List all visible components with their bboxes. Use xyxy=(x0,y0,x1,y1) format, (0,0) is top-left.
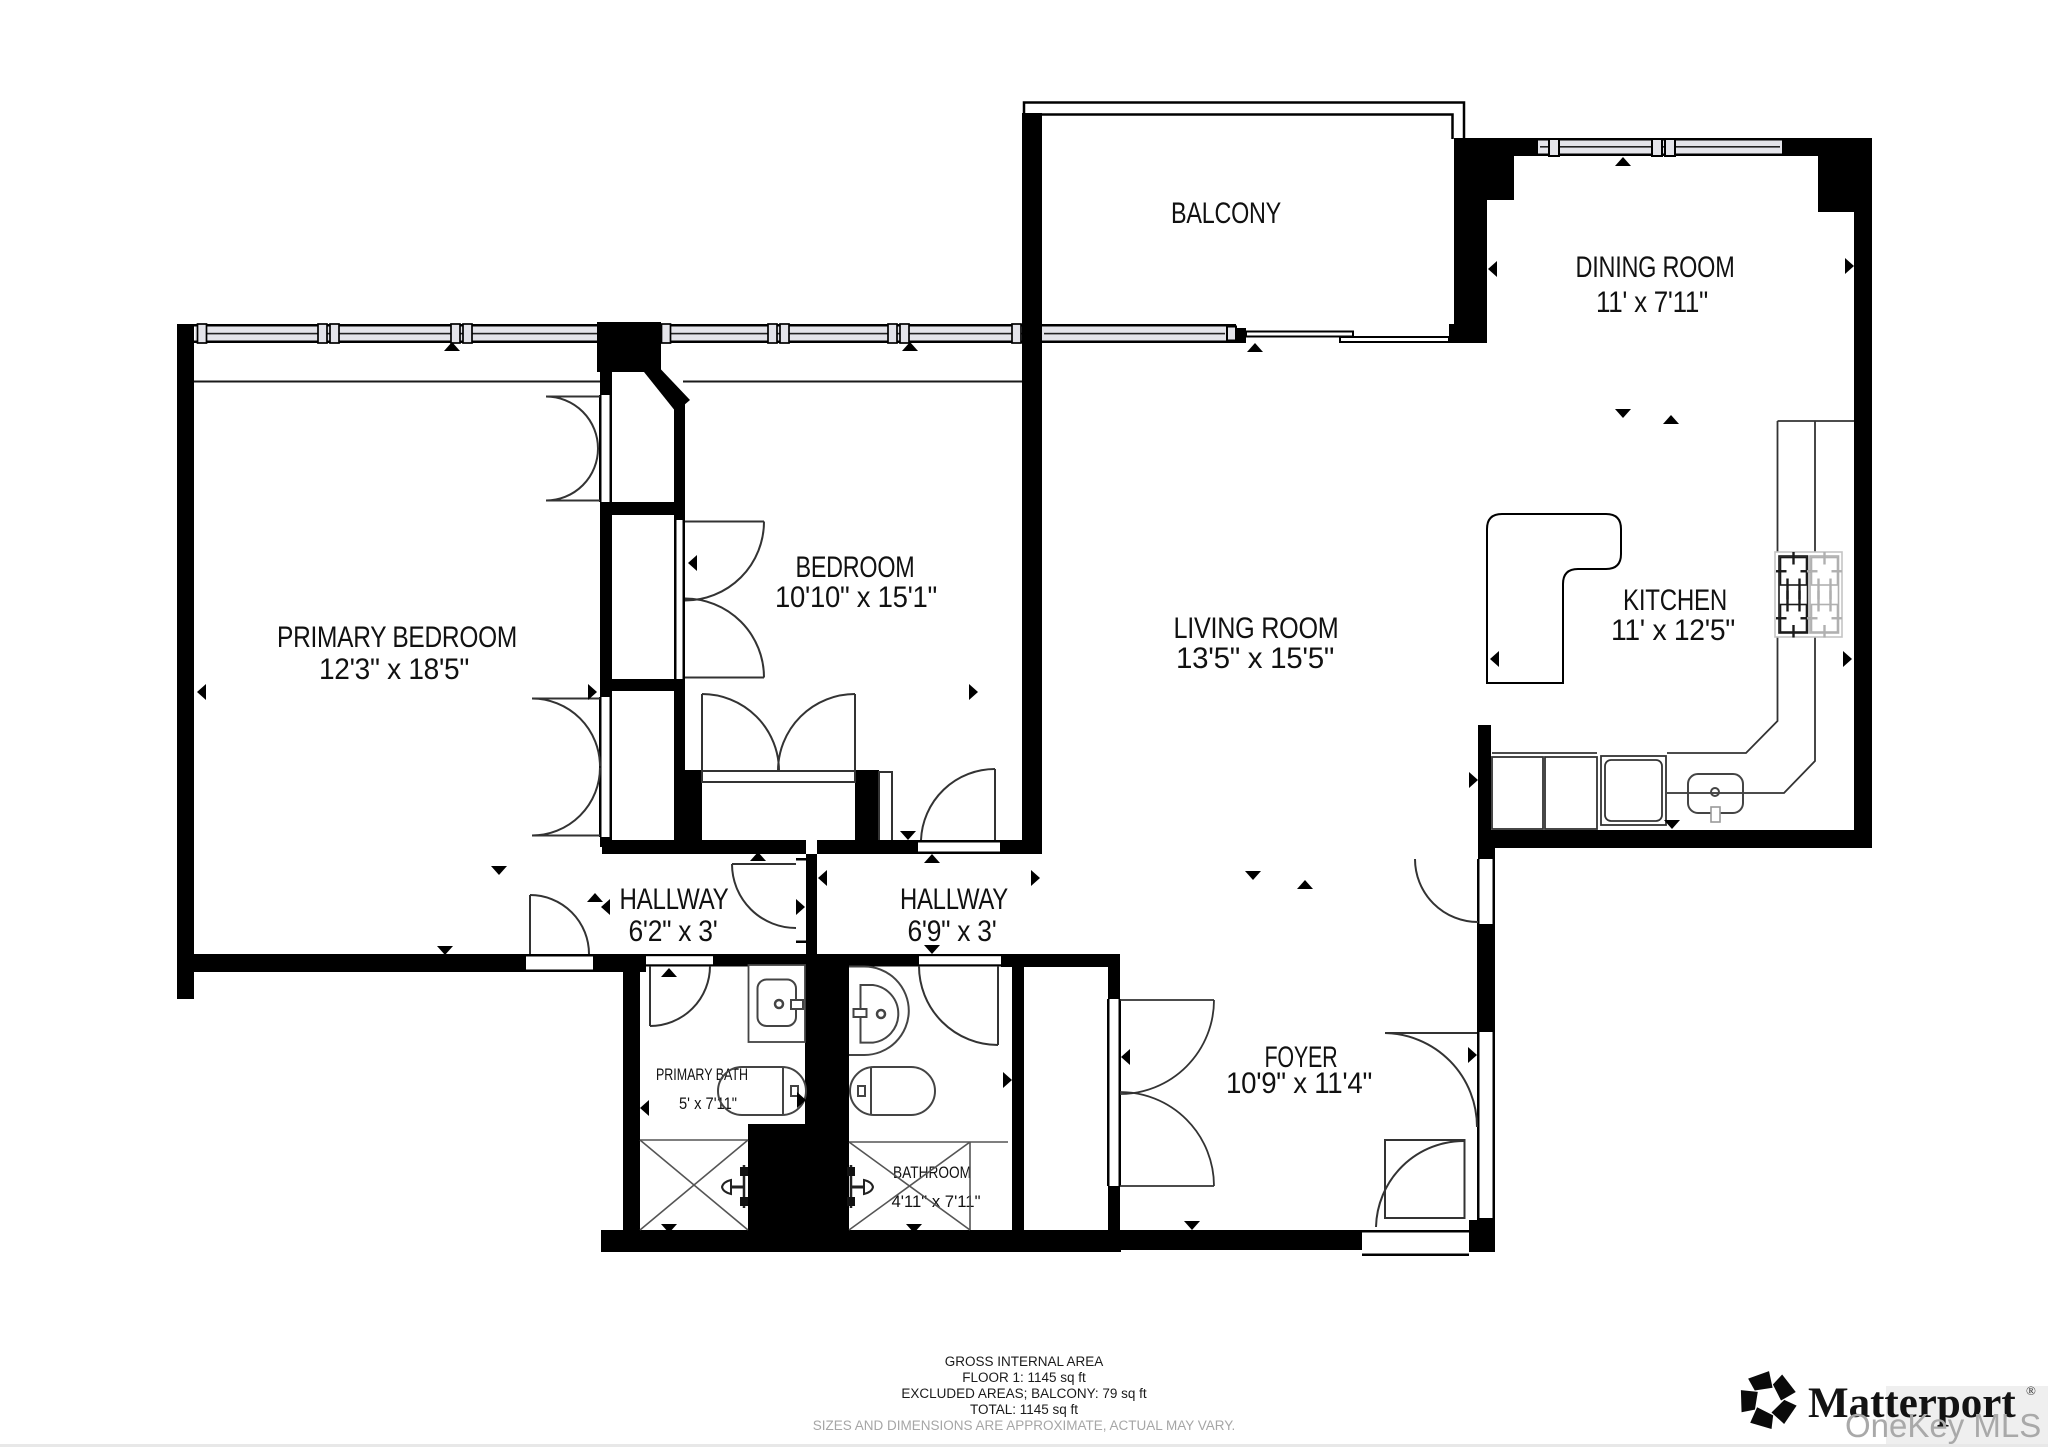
svg-text:LIVING ROOM: LIVING ROOM xyxy=(1174,612,1339,645)
svg-text:6'2" x 3': 6'2" x 3' xyxy=(629,915,718,948)
svg-text:HALLWAY: HALLWAY xyxy=(620,883,730,916)
svg-text:4'11" x 7'11": 4'11" x 7'11" xyxy=(892,1192,981,1211)
svg-text:PRIMARY BEDROOM: PRIMARY BEDROOM xyxy=(277,621,517,654)
svg-text:12'3" x 18'5": 12'3" x 18'5" xyxy=(319,653,469,686)
svg-text:KITCHEN: KITCHEN xyxy=(1623,584,1727,617)
svg-text:DINING ROOM: DINING ROOM xyxy=(1576,251,1735,284)
svg-text:FLOOR 1: 1145 sq ft: FLOOR 1: 1145 sq ft xyxy=(962,1370,1086,1385)
svg-text:BALCONY: BALCONY xyxy=(1171,197,1281,230)
svg-text:BEDROOM: BEDROOM xyxy=(796,551,915,584)
svg-text:10'9" x 11'4": 10'9" x 11'4" xyxy=(1226,1067,1372,1100)
svg-text:®: ® xyxy=(2026,1383,2036,1398)
svg-text:OneKey MLS: OneKey MLS xyxy=(1845,1407,2041,1444)
svg-text:11' x 7'11": 11' x 7'11" xyxy=(1596,286,1708,319)
svg-text:TOTAL: 1145 sq ft: TOTAL: 1145 sq ft xyxy=(970,1402,1078,1417)
svg-text:11' x 12'5": 11' x 12'5" xyxy=(1611,614,1735,647)
svg-text:HALLWAY: HALLWAY xyxy=(900,883,1008,916)
svg-text:13'5" x 15'5": 13'5" x 15'5" xyxy=(1176,642,1334,675)
svg-text:6'9" x 3': 6'9" x 3' xyxy=(908,915,997,948)
svg-text:SIZES AND DIMENSIONS ARE APPRO: SIZES AND DIMENSIONS ARE APPROXIMATE, AC… xyxy=(813,1418,1236,1433)
svg-text:EXCLUDED AREAS; BALCONY: 79 sq: EXCLUDED AREAS; BALCONY: 79 sq ft xyxy=(901,1386,1147,1401)
svg-text:BATHROOM: BATHROOM xyxy=(893,1163,971,1182)
svg-text:GROSS INTERNAL AREA: GROSS INTERNAL AREA xyxy=(945,1354,1104,1369)
svg-text:10'10" x 15'1": 10'10" x 15'1" xyxy=(775,581,937,614)
